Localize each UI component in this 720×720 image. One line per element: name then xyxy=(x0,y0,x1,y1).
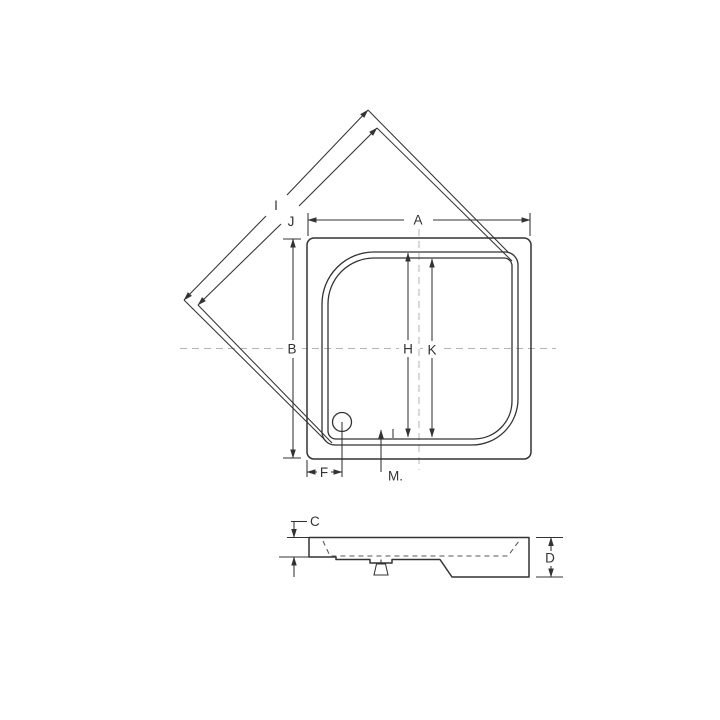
dim-i-line-lower xyxy=(184,216,266,300)
shower-tray-dimension-diagram: I J A B H K F M. xyxy=(0,0,720,720)
dim-label-f: F xyxy=(320,465,328,480)
dim-label-i: I xyxy=(274,198,278,213)
dim-label-k: K xyxy=(427,343,436,358)
dim-label-d: D xyxy=(545,551,555,566)
dim-i-line-upper xyxy=(287,110,368,195)
dim-label-c: C xyxy=(310,514,320,529)
dim-label-b: B xyxy=(287,342,296,357)
drain-trap-cup xyxy=(374,564,388,575)
dim-j-line-upper xyxy=(299,128,377,206)
dim-j-extension-right xyxy=(377,128,512,261)
dim-j-extension-left xyxy=(198,305,332,443)
section-body-outline xyxy=(309,538,529,578)
dim-j-line-lower xyxy=(198,224,281,305)
dim-i-extension-left xyxy=(184,300,326,441)
dim-label-h: H xyxy=(403,342,413,357)
dim-label-a: A xyxy=(413,213,422,228)
section-view: C D xyxy=(279,514,563,577)
dim-label-m: M. xyxy=(388,469,403,484)
dim-i-extension-right xyxy=(368,110,508,252)
dim-label-j: J xyxy=(288,214,295,229)
section-basin-hidden-profile xyxy=(323,541,519,556)
technical-drawing-canvas: I J A B H K F M. xyxy=(0,0,720,720)
plan-view: I J A B H K F M. xyxy=(180,110,556,484)
